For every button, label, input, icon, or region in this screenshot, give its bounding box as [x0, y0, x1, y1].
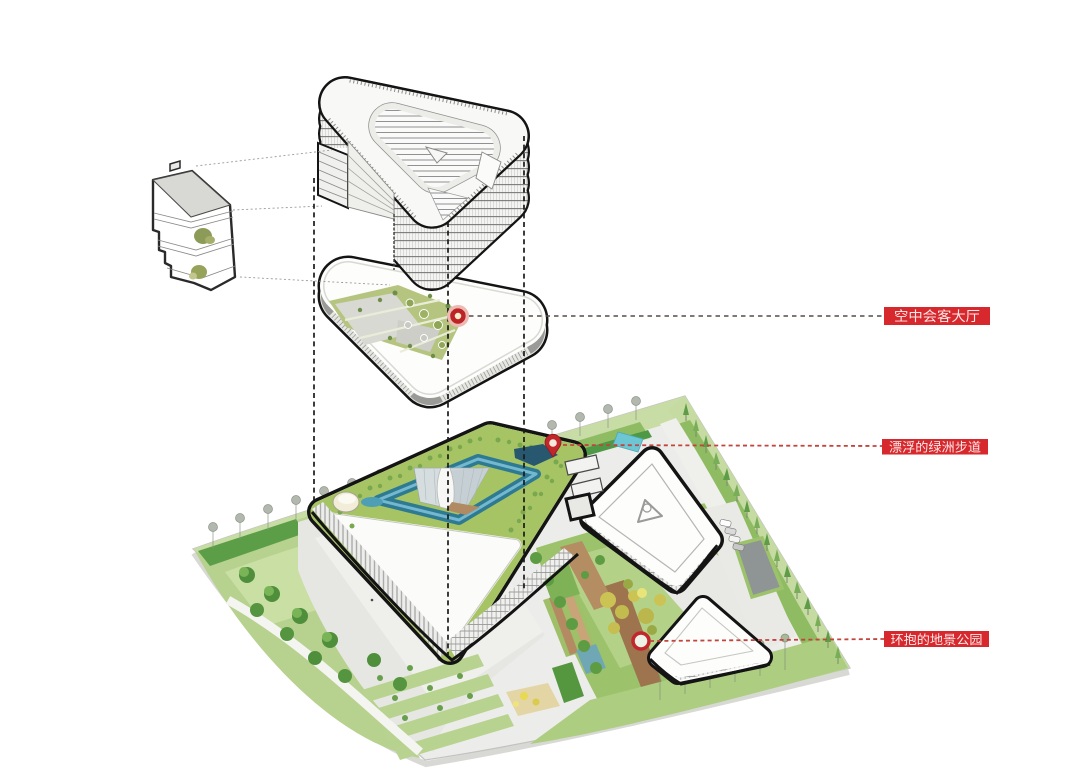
svg-text:环抱的地景公园: 环抱的地景公园 [891, 632, 983, 647]
svg-text:漂浮的绿洲步道: 漂浮的绿洲步道 [889, 440, 982, 455]
svg-text:空中会客大厅: 空中会客大厅 [894, 308, 980, 324]
